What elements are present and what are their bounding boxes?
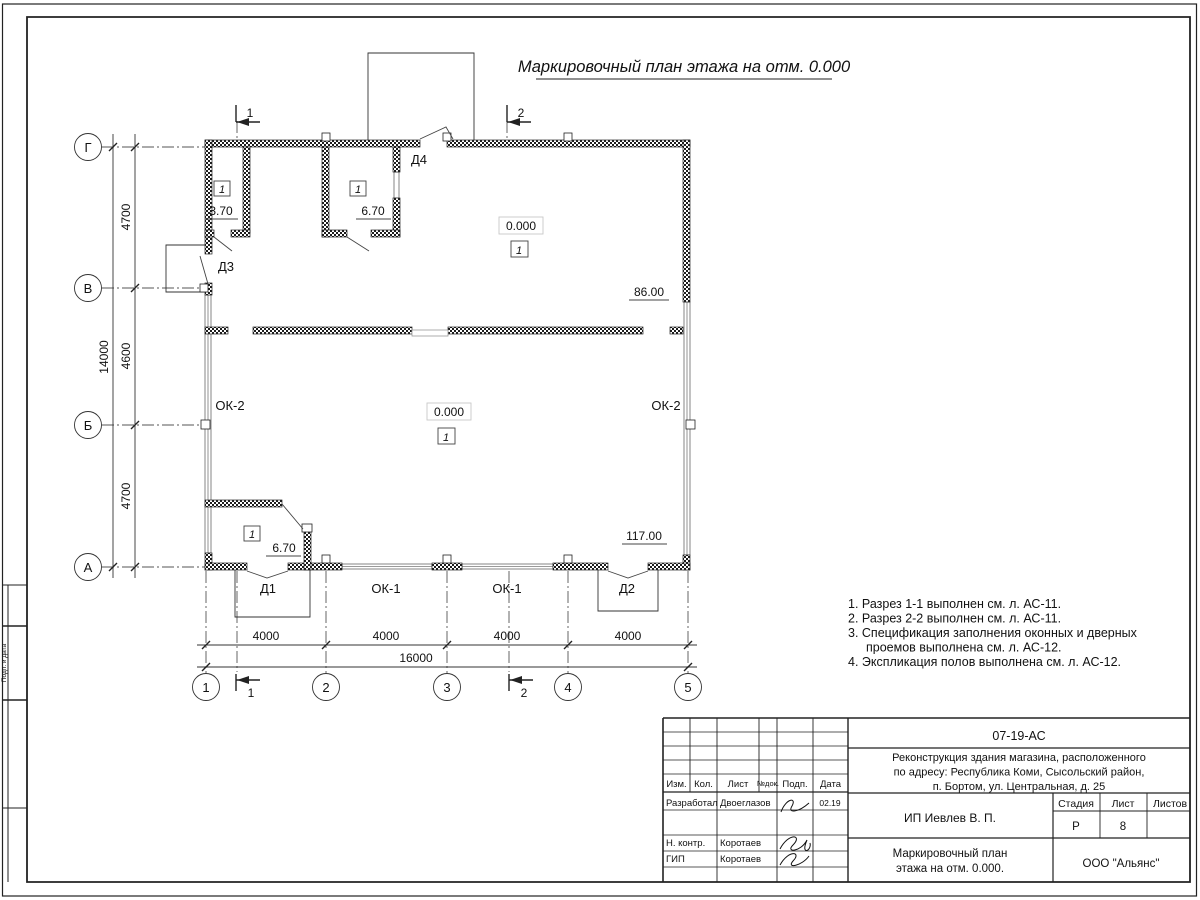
room-number-c: 1: [244, 526, 260, 541]
plan-labels: Д4 Д3 Д1 Д2 ОК-1 ОК-1 ОК-2 ОК-2 3.70 6.7…: [205, 152, 681, 596]
room-number-hall-center-text: 1: [443, 432, 449, 444]
signer-role-2: Н. контр.: [666, 838, 705, 849]
axis-col-1-label: 1: [202, 680, 209, 695]
signer-name-3: Коротаев: [720, 854, 761, 865]
title-block: 07-19-АС Реконструкция здания магазина, …: [663, 718, 1190, 882]
axis-col-1: 1: [193, 674, 220, 701]
room-number-a-text: 1: [219, 184, 225, 196]
axis-row-v: В: [75, 275, 102, 302]
dim-4000-4: 4000: [615, 629, 642, 643]
dim-4700-bottom: 4700: [119, 482, 133, 509]
titleblock-client: ИП Иевлев В. П.: [904, 811, 996, 825]
note-line-1: 1. Разрез 1-1 выполнен см. л. АС-11.: [848, 597, 1061, 611]
inner-wall-4: [670, 327, 683, 334]
room-c-door-leaf: [282, 504, 303, 529]
room-number-hall-top-text: 1: [516, 245, 522, 257]
elevation-670-bottom-text: 6.70: [272, 541, 296, 555]
walls: [205, 140, 690, 570]
elevation-670-top-text: 6.70: [361, 204, 385, 218]
axis-col-2: 2: [313, 674, 340, 701]
door-label-d3: Д3: [218, 259, 234, 274]
notes: 1. Разрез 1-1 выполнен см. л. АС-11. 2. …: [848, 597, 1138, 669]
titleblock-col-ndok: №док.: [757, 779, 779, 788]
titleblock-project-line-3: п. Бортом, ул. Центральная, д. 25: [933, 781, 1106, 793]
room-a-bottom-right: [231, 230, 250, 237]
door-d2-break: [608, 571, 648, 578]
right-wall-upper: [683, 140, 690, 302]
door-d1-break: [247, 571, 288, 578]
axis-col-5-label: 5: [684, 680, 691, 695]
elevation-117-text: 117.00: [626, 529, 662, 543]
axis-row-g: Г: [75, 134, 102, 161]
signer-role-3: ГИП: [666, 854, 685, 865]
window-label-ok2-right: ОК-2: [651, 398, 680, 413]
inner-wall-1: [205, 327, 228, 334]
titleblock-company: ООО "Альянс": [1083, 858, 1160, 870]
dim-14000: 14000: [97, 340, 111, 374]
bottom-wall-2: [288, 563, 342, 570]
axis-row-b: Б: [75, 412, 102, 439]
room-a-bottom-left: [205, 230, 214, 237]
door-d3-leaf: [200, 256, 208, 284]
page-title: Маркировочный план этажа на отм. 0.000: [518, 58, 851, 76]
window-label-ok1-left: ОК-1: [371, 581, 400, 596]
axis-row-a: А: [75, 554, 102, 581]
door-label-d4: Д4: [411, 152, 427, 167]
room-number-hall-center: 1: [438, 428, 455, 444]
window-label-ok1-right: ОК-1: [492, 581, 521, 596]
elevation-86-text: 86.00: [634, 285, 664, 299]
dim-4600: 4600: [119, 342, 133, 369]
titleblock-drawing-title-2: этажа на отм. 0.000.: [896, 863, 1004, 875]
titleblock-col-data: Дата: [820, 779, 842, 790]
note-line-3: 3. Спецификация заполнения оконных и две…: [848, 626, 1138, 640]
door-leaves: [200, 127, 648, 578]
elevation-zero-center-text: 0.000: [434, 405, 464, 419]
door-label-d2: Д2: [619, 581, 635, 596]
section-mark-1-bottom: 1: [236, 674, 260, 700]
room-b-door-leaf: [347, 237, 369, 251]
titleblock-col-list: Лист: [728, 779, 749, 790]
door-label-d1: Д1: [260, 581, 276, 596]
titleblock-doc-number: 07-19-АС: [992, 729, 1045, 743]
axis-col-4: 4: [555, 674, 582, 701]
bottom-wall-1: [205, 563, 247, 570]
titleblock-stage-label: Стадия: [1058, 798, 1094, 810]
elevation-670-bottom: 6.70: [266, 541, 301, 556]
axis-row-g-label: Г: [84, 140, 91, 155]
bottom-wall-5: [648, 563, 690, 570]
elevation-117: 117.00: [622, 529, 667, 544]
titleblock-sheet-value: 8: [1120, 821, 1126, 833]
axis-row-v-label: В: [84, 281, 93, 296]
axis-row-b-label: Б: [84, 418, 93, 433]
titleblock-col-kol: Кол.: [694, 779, 713, 790]
axis-col-5: 5: [675, 674, 702, 701]
section-1-label: 1: [247, 106, 254, 120]
signer-date-1: 02.19: [819, 798, 841, 808]
room-pass-window-strip: [394, 172, 399, 198]
axis-col-3-label: 3: [443, 680, 450, 695]
titleblock-sheets-label: Листов: [1153, 798, 1188, 810]
axis-row-a-label: А: [84, 560, 93, 575]
note-line-4: 4. Экспликация полов выполнена см. л. АС…: [848, 655, 1121, 669]
titleblock-drawing-title-1: Маркировочный план: [893, 848, 1008, 860]
inner-wall-2: [253, 327, 412, 334]
room-a-door-leaf: [214, 237, 232, 251]
dim-4700-top: 4700: [119, 203, 133, 230]
section-2-label: 2: [518, 106, 525, 120]
room-c-stub-wall: [304, 531, 311, 570]
window-label-ok2-left: ОК-2: [215, 398, 244, 413]
section-mark-2-bottom: 2: [509, 674, 533, 700]
axis-col-2-label: 2: [322, 680, 329, 695]
elevation-370: 3.70: [205, 204, 238, 219]
room-number-b: 1: [350, 181, 366, 196]
room-b-bottom-left: [322, 230, 347, 237]
top-wall-left: [205, 140, 420, 147]
room-number-a: 1: [214, 181, 230, 196]
axis-col-3: 3: [434, 674, 461, 701]
elevation-670-top: 6.70: [356, 204, 391, 219]
drawing-sheet: Подп. и дата Маркировочный план этажа на…: [0, 0, 1200, 900]
window-strips: [205, 172, 690, 569]
room-b-bottom-right: [371, 230, 400, 237]
room-a-right-wall: [243, 147, 250, 233]
signature-2: [780, 837, 810, 851]
section-mark-1-top: 1: [236, 105, 260, 126]
wall-tick-squares: [200, 133, 695, 563]
section-marks: 1 2 1 2: [236, 105, 533, 700]
dim-4000-2: 4000: [373, 629, 400, 643]
room-number-b-text: 1: [355, 184, 361, 196]
bottom-wall-3: [432, 563, 462, 570]
note-line-2: 2. Разрез 2-2 выполнен см. л. АС-11.: [848, 612, 1061, 626]
dim-4000-1: 4000: [253, 629, 280, 643]
section-1-label-bottom: 1: [248, 686, 255, 700]
room-c-top-wall: [205, 500, 282, 507]
drawing-main-title: Маркировочный план этажа на отм. 0.000: [518, 58, 851, 79]
titleblock-col-izm: Изм.: [666, 779, 686, 790]
titleblock-stage-value: Р: [1072, 821, 1080, 833]
titleblock-project-line-1: Реконструкция здания магазина, расположе…: [892, 752, 1146, 764]
signer-role-1: Разработал: [666, 798, 718, 809]
titleblock-project-line-2: по адресу: Республика Коми, Сысольский р…: [894, 767, 1145, 779]
titleblock-col-podp: Подп.: [782, 779, 807, 790]
room-number-c-text: 1: [249, 529, 255, 541]
elevation-zero-top: 0.000: [499, 217, 543, 234]
room-b-left-wall: [322, 147, 329, 237]
section-mark-2-top: 2: [507, 105, 531, 126]
elevation-370-text: 3.70: [209, 204, 233, 218]
inner-wall-3: [448, 327, 643, 334]
axis-col-4-label: 4: [564, 680, 571, 695]
titleblock-sheet-label: Лист: [1112, 798, 1135, 810]
signature-3: [780, 854, 809, 866]
signer-name-1: Двоеглазов: [720, 798, 771, 809]
side-stamp-label: Подп. и дата: [1, 643, 8, 682]
dim-16000: 16000: [399, 651, 433, 665]
room-number-hall-top: 1: [511, 241, 528, 257]
dim-4000-3: 4000: [494, 629, 521, 643]
elevation-zero-top-text: 0.000: [506, 219, 536, 233]
bottom-wall-4: [553, 563, 608, 570]
signer-name-2: Коротаев: [720, 838, 761, 849]
note-line-3b: проемов выполнена см. л. АС-12.: [866, 641, 1062, 655]
room-b-right-wall-top: [393, 147, 400, 172]
elevation-zero-center: 0.000: [427, 403, 471, 420]
elevation-86: 86.00: [629, 285, 669, 300]
section-2-label-bottom: 2: [521, 686, 528, 700]
inner-wall-threshold: [412, 330, 448, 336]
